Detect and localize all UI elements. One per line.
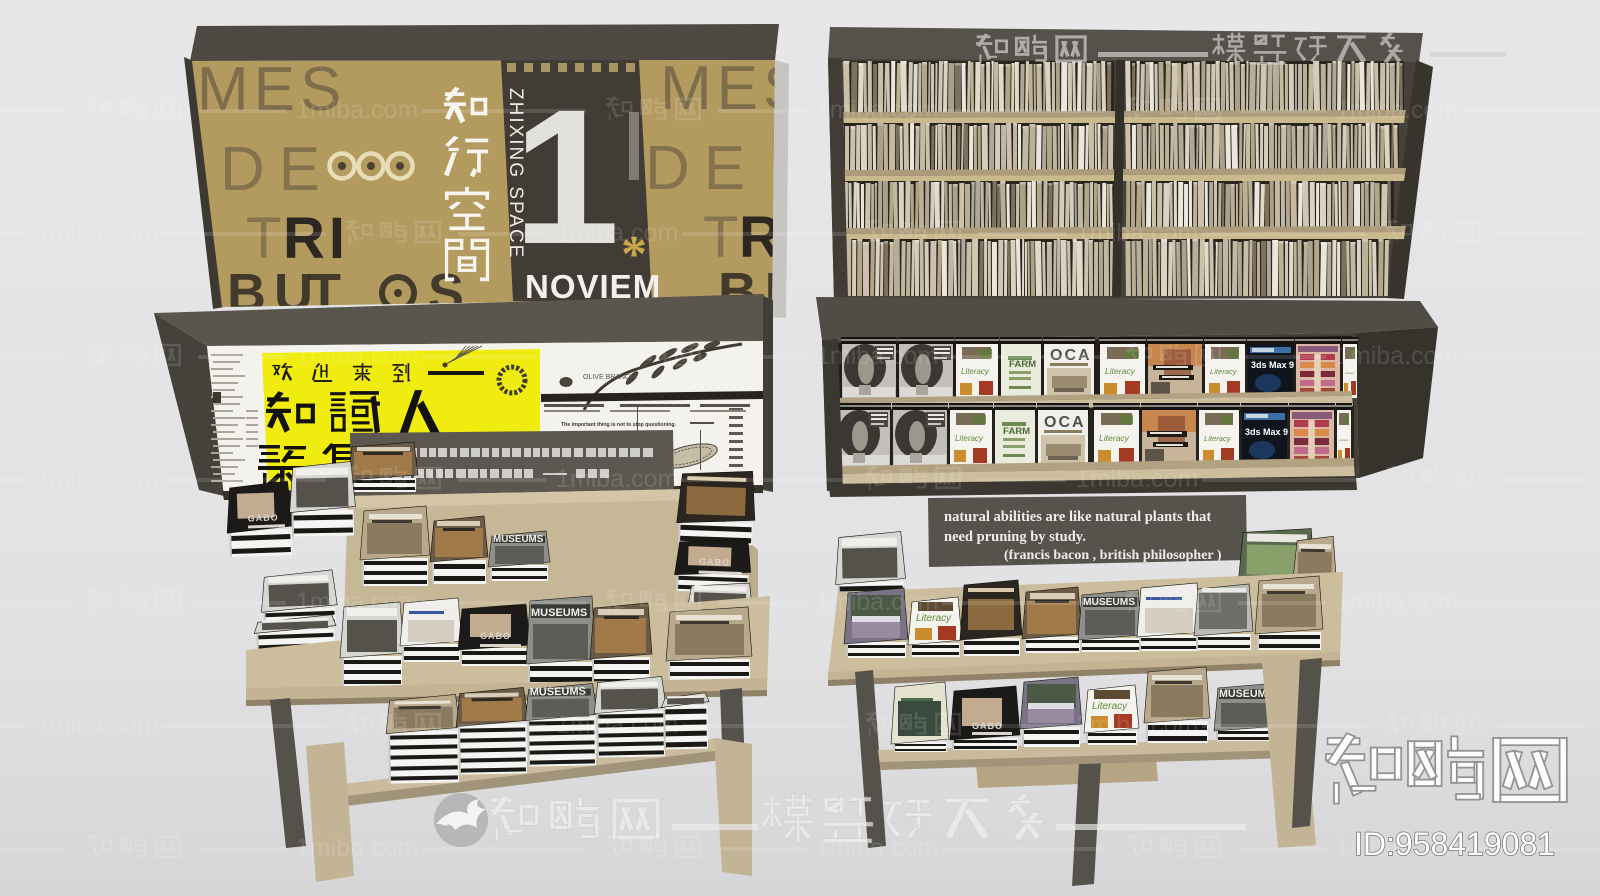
svg-text:natural abilities are like nat: natural abilities are like natural plant… [944, 509, 1211, 525]
svg-text:Literacy: Literacy [1210, 367, 1238, 376]
svg-text:Literacy: Literacy [1339, 438, 1349, 442]
svg-text:1miba.com: 1miba.com [1336, 96, 1458, 124]
svg-text:1miba.com: 1miba.com [816, 588, 938, 616]
svg-text:1miba.com: 1miba.com [1336, 588, 1458, 616]
svg-text:Literacy: Literacy [961, 367, 990, 376]
svg-text:MUSEUMS: MUSEUMS [531, 607, 587, 619]
svg-text:1miba.com: 1miba.com [556, 711, 678, 739]
svg-text:GABO: GABO [248, 512, 279, 523]
svg-text:3ds Max 9: 3ds Max 9 [1251, 360, 1294, 370]
svg-text:FARM: FARM [1003, 426, 1030, 437]
svg-text:1miba.com: 1miba.com [36, 711, 158, 739]
svg-text:T: T [246, 206, 281, 271]
svg-text:1miba.com: 1miba.com [1076, 465, 1198, 493]
svg-text:1miba.com: 1miba.com [1596, 711, 1600, 739]
svg-text:Literacy: Literacy [1105, 366, 1136, 376]
svg-text:1miba.com: 1miba.com [1596, 219, 1600, 247]
svg-text:1: 1 [513, 69, 620, 284]
svg-text:1miba.com: 1miba.com [556, 465, 678, 493]
svg-text:Literacy: Literacy [1204, 434, 1232, 443]
svg-text:GABO: GABO [699, 557, 730, 568]
svg-text:RI: RI [283, 206, 349, 271]
svg-text:1miba.com: 1miba.com [556, 219, 678, 247]
svg-text:1miba.com: 1miba.com [816, 96, 938, 124]
svg-text:need pruning by study.: need pruning by study. [944, 529, 1086, 545]
svg-text:MUSEUMS: MUSEUMS [530, 686, 586, 699]
svg-text:DE: DE [645, 134, 759, 203]
svg-text:OCA: OCA [1044, 414, 1086, 431]
svg-text:DE: DE [220, 135, 334, 204]
svg-text:1miba.com: 1miba.com [36, 465, 158, 493]
svg-text:The important thing is not to: The important thing is not to stop quest… [561, 422, 677, 428]
svg-text:Literacy: Literacy [1345, 371, 1355, 375]
svg-text:FARM: FARM [1009, 359, 1036, 370]
svg-text:ID:958419081: ID:958419081 [1354, 826, 1555, 862]
svg-text:Literacy: Literacy [955, 434, 984, 443]
svg-text:1miba.com: 1miba.com [296, 342, 418, 370]
svg-text:1miba.com: 1miba.com [296, 834, 418, 862]
svg-text:Literacy: Literacy [1099, 433, 1130, 443]
svg-text:1miba.com: 1miba.com [1336, 342, 1458, 370]
svg-text:(francis bacon , british philo: (francis bacon , british philosopher ) [1004, 548, 1222, 563]
svg-text:3ds Max 9: 3ds Max 9 [1245, 427, 1288, 437]
svg-text:1miba.com: 1miba.com [1596, 465, 1600, 493]
svg-text:1miba.com: 1miba.com [1076, 711, 1198, 739]
svg-text:1miba.com: 1miba.com [36, 219, 158, 247]
svg-text:1miba.com: 1miba.com [816, 342, 938, 370]
svg-text:T: T [703, 205, 738, 270]
svg-text:OLIVE BRANCH.: OLIVE BRANCH. [583, 374, 637, 381]
svg-text:GABO: GABO [480, 631, 511, 641]
svg-text:1miba.com: 1miba.com [1076, 219, 1198, 247]
svg-text:1miba.com: 1miba.com [296, 96, 418, 124]
svg-text:1miba.com: 1miba.com [296, 588, 418, 616]
svg-text:MUSEUMS: MUSEUMS [493, 534, 544, 545]
